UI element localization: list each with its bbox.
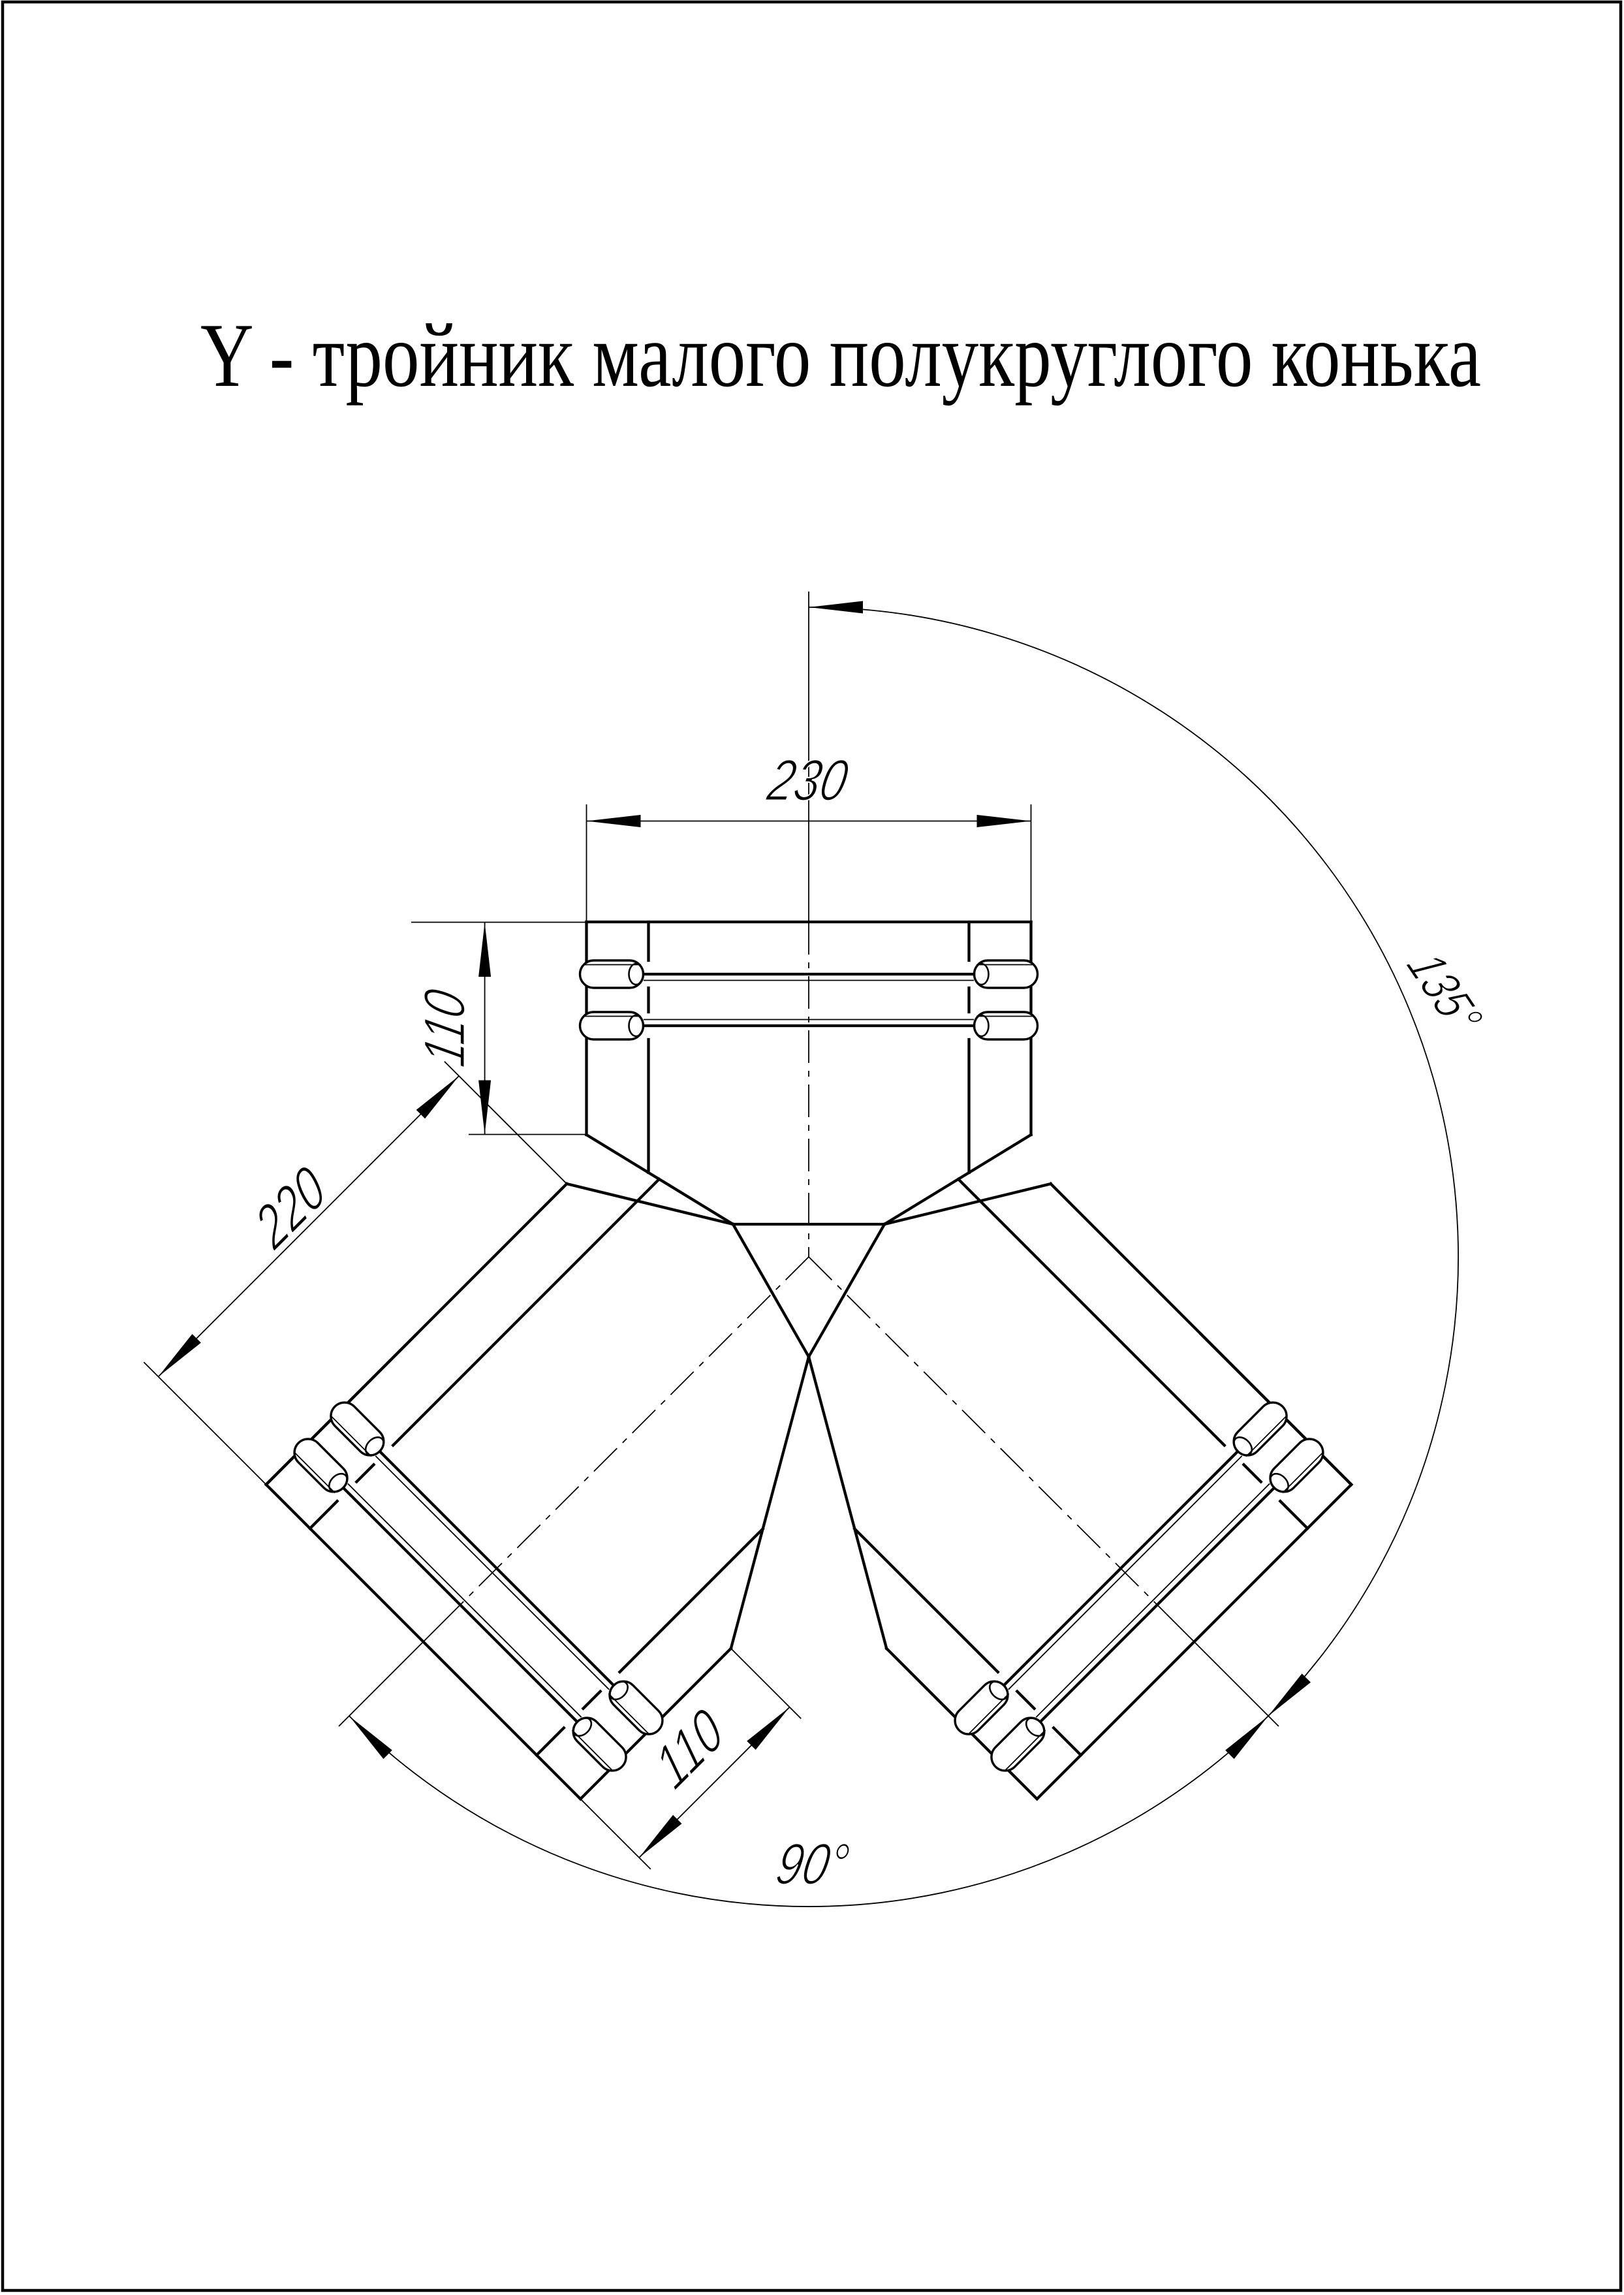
svg-text:90°: 90° [771,1832,854,1897]
svg-text:Y - тройник малого полукруглог: Y - тройник малого полукруглого конька [200,305,1481,406]
svg-text:230: 230 [762,748,853,813]
svg-text:110: 110 [413,984,477,1071]
